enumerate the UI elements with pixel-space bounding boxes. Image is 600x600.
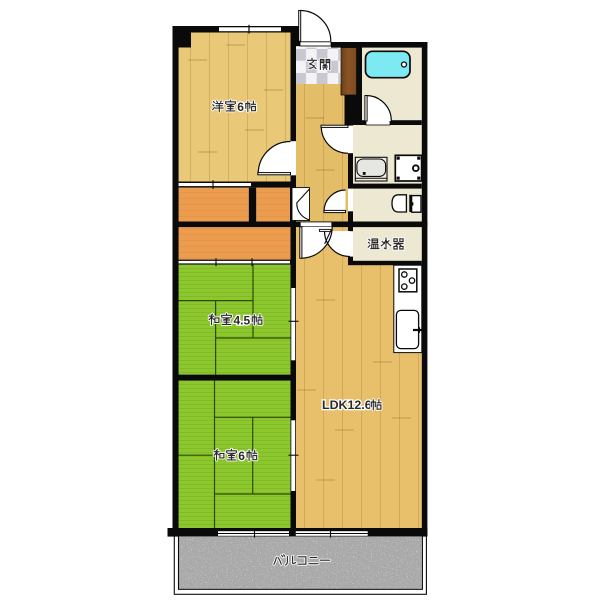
svg-text:4.5: 4.5: [234, 313, 251, 327]
svg-text:LDK12.6: LDK12.6: [322, 398, 372, 412]
svg-text:6: 6: [238, 449, 245, 463]
svg-text:6: 6: [237, 100, 244, 114]
